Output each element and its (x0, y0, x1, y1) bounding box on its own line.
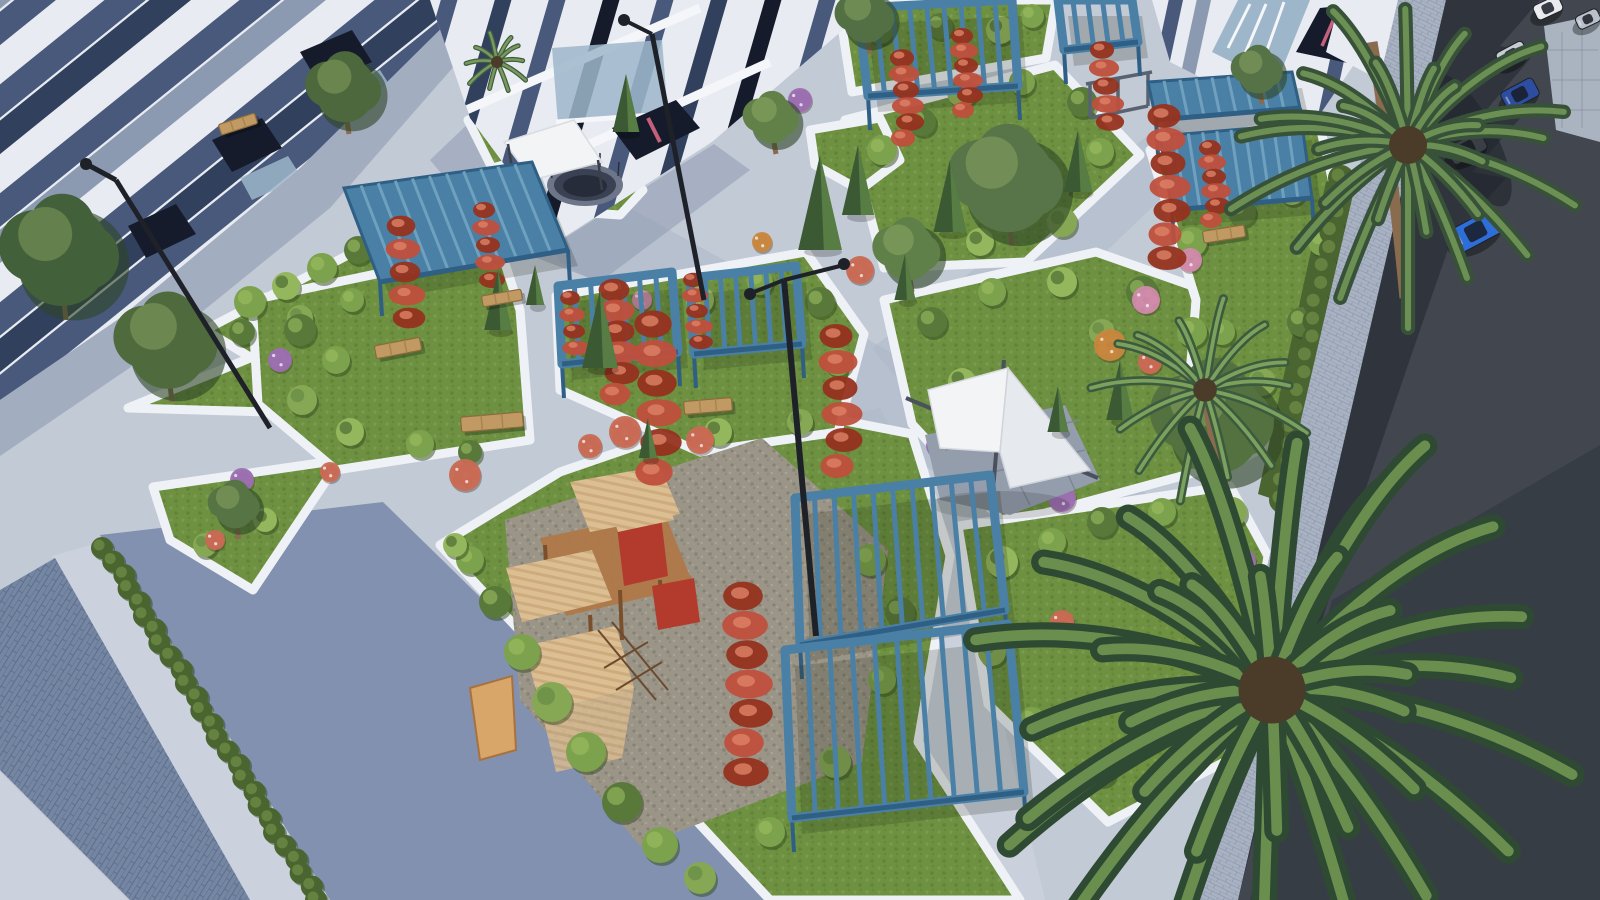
courtyard-render (0, 0, 1600, 900)
play-box-red (652, 578, 700, 630)
render-viewport (0, 0, 1600, 900)
